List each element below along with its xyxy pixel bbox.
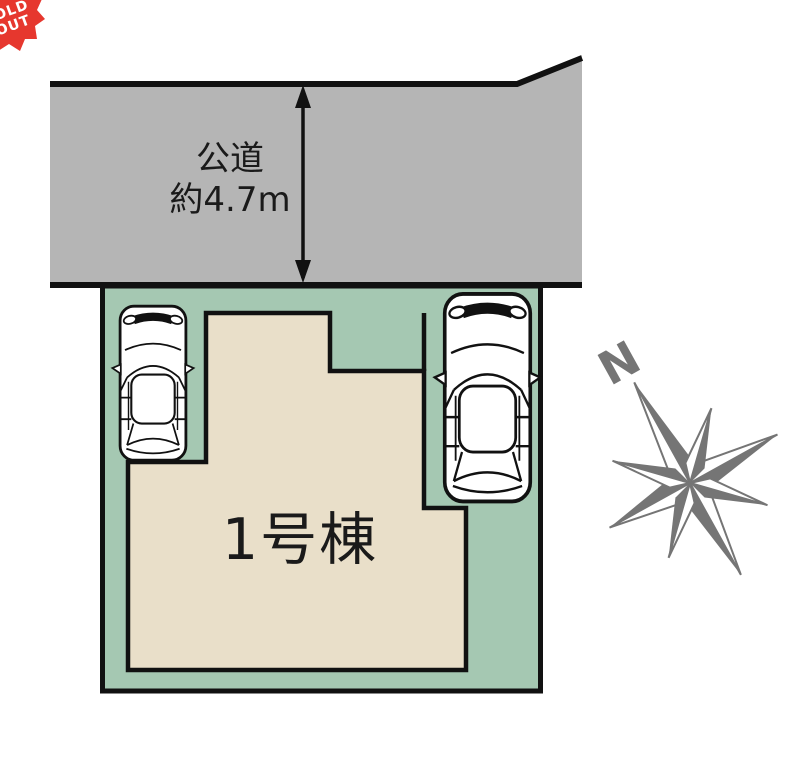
building-1-label: 1号棟 [150,508,450,572]
car-right-icon [435,294,541,502]
sold-out-badge: SOLD OUT [0,0,45,51]
site-plan-canvas: SOLD OUT 公道 約4.7m 1号棟 N [0,0,800,774]
car-left-icon [112,306,193,460]
road-width-label: 約4.7m [130,180,330,221]
site-plan-drawing: SOLD OUT [0,0,800,774]
road-top-edge [50,58,582,84]
road-label: 公道 約4.7m [130,139,330,221]
compass-rose-icon [554,334,800,619]
road-name-label: 公道 [130,139,330,180]
